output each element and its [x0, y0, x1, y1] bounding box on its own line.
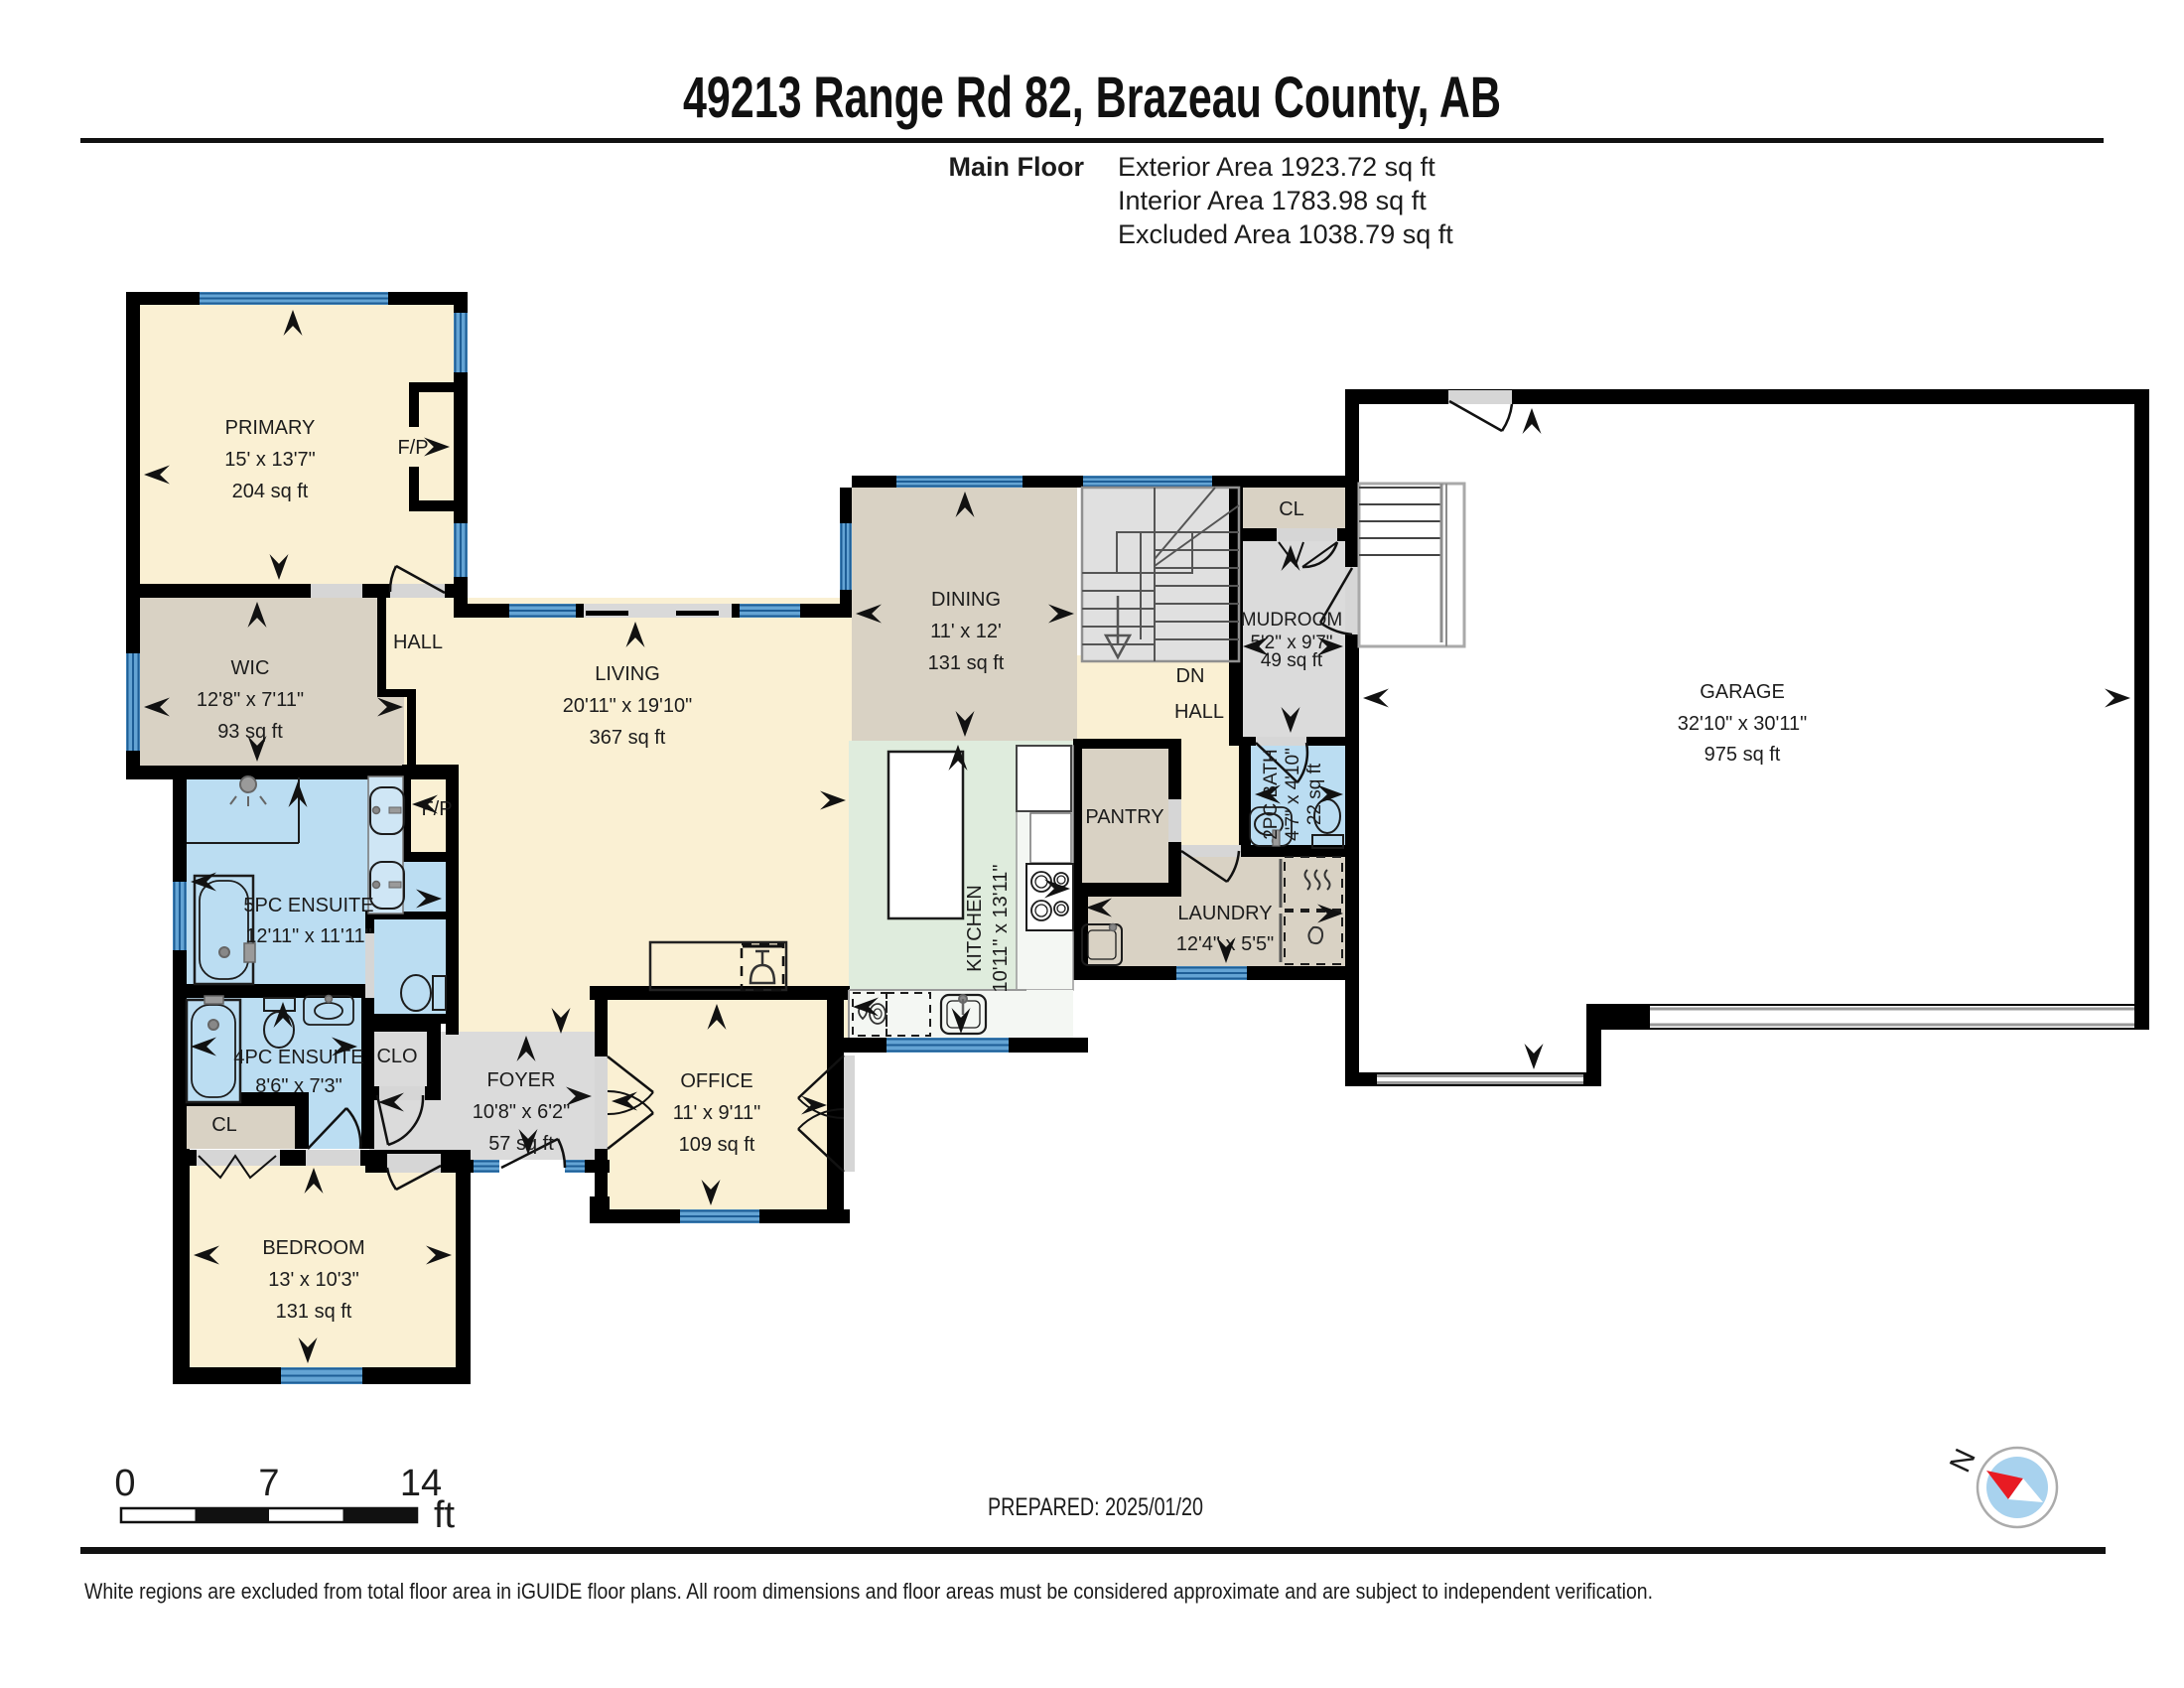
- svg-text:109 sq ft: 109 sq ft: [679, 1134, 755, 1156]
- svg-text:DINING: DINING: [931, 589, 1001, 611]
- svg-text:LIVING: LIVING: [595, 663, 660, 685]
- svg-text:15' x 13'7": 15' x 13'7": [224, 449, 315, 471]
- svg-text:131 sq ft: 131 sq ft: [928, 652, 1005, 674]
- svg-text:10'11" x 13'11": 10'11" x 13'11": [990, 865, 1012, 993]
- svg-text:Exterior Area 1923.72 sq ft: Exterior Area 1923.72 sq ft: [1118, 152, 1435, 182]
- svg-text:4'7" x 4'10": 4'7" x 4'10": [1283, 748, 1303, 841]
- svg-text:975 sq ft: 975 sq ft: [1705, 744, 1781, 766]
- svg-text:KITCHEN: KITCHEN: [964, 885, 986, 972]
- svg-text:HALL: HALL: [393, 632, 443, 653]
- svg-text:OFFICE: OFFICE: [680, 1070, 752, 1092]
- svg-text:20'11" x 19'10": 20'11" x 19'10": [563, 695, 692, 717]
- svg-text:WIC: WIC: [231, 657, 270, 679]
- svg-text:7: 7: [258, 1463, 279, 1504]
- svg-text:CL: CL: [211, 1114, 237, 1136]
- svg-text:12'11" x 11'11": 12'11" x 11'11": [245, 925, 371, 947]
- svg-text:F/P: F/P: [397, 437, 428, 459]
- svg-text:11' x 9'11": 11' x 9'11": [673, 1102, 761, 1124]
- svg-text:11' x 12': 11' x 12': [930, 621, 1002, 642]
- svg-text:Main Floor: Main Floor: [949, 152, 1085, 182]
- svg-text:32'10" x 30'11": 32'10" x 30'11": [1678, 713, 1807, 735]
- svg-text:PRIMARY: PRIMARY: [225, 417, 316, 439]
- svg-text:13' x 10'3": 13' x 10'3": [268, 1269, 358, 1291]
- svg-text:49213 Range Rd 82, Brazeau Cou: 49213 Range Rd 82, Brazeau County, AB: [683, 66, 1501, 130]
- svg-text:DN: DN: [1176, 665, 1205, 687]
- svg-text:HALL: HALL: [1174, 701, 1224, 723]
- svg-text:FOYER: FOYER: [487, 1069, 556, 1091]
- svg-text:PANTRY: PANTRY: [1085, 806, 1163, 828]
- svg-text:CL: CL: [1279, 498, 1304, 520]
- svg-text:CLO: CLO: [376, 1046, 417, 1067]
- svg-text:5PC ENSUITE: 5PC ENSUITE: [243, 895, 373, 916]
- svg-text:PREPARED: 2025/01/20: PREPARED: 2025/01/20: [988, 1493, 1203, 1521]
- svg-text:Excluded Area 1038.79 sq ft: Excluded Area 1038.79 sq ft: [1118, 219, 1453, 249]
- svg-text:49 sq ft: 49 sq ft: [1261, 650, 1323, 671]
- svg-text:10'8" x 6'2": 10'8" x 6'2": [473, 1101, 571, 1123]
- svg-text:8'6" x 7'3": 8'6" x 7'3": [255, 1075, 341, 1097]
- svg-text:Interior Area 1783.98 sq ft: Interior Area 1783.98 sq ft: [1118, 186, 1427, 215]
- svg-text:BEDROOM: BEDROOM: [262, 1237, 364, 1259]
- svg-text:131 sq ft: 131 sq ft: [276, 1301, 352, 1323]
- svg-text:12'8" x 7'11": 12'8" x 7'11": [197, 689, 304, 711]
- svg-text:ft: ft: [434, 1494, 456, 1536]
- svg-text:367 sq ft: 367 sq ft: [590, 727, 666, 749]
- svg-text:0: 0: [114, 1463, 135, 1504]
- svg-text:MUDROOM: MUDROOM: [1241, 610, 1342, 631]
- svg-text:22 sq ft: 22 sq ft: [1304, 763, 1325, 825]
- svg-text:204 sq ft: 204 sq ft: [232, 481, 309, 502]
- svg-text:White regions are excluded fro: White regions are excluded from total fl…: [84, 1579, 1653, 1604]
- svg-text:LAUNDRY: LAUNDRY: [1177, 903, 1272, 924]
- svg-text:GARAGE: GARAGE: [1700, 681, 1785, 703]
